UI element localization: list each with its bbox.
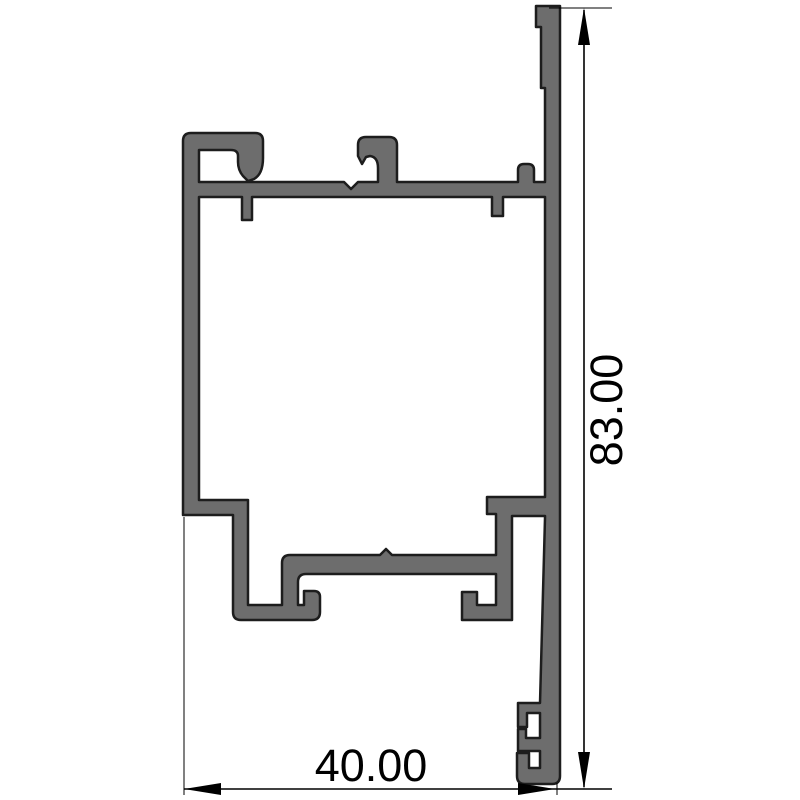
technical-drawing: 83.00 40.00	[0, 0, 800, 800]
width-dimension-label: 40.00	[315, 740, 428, 791]
drawing-canvas: 83.00 40.00	[0, 0, 800, 800]
arrow-up-icon	[578, 8, 590, 45]
vertical-dimension: 83.00	[549, 8, 632, 789]
profile-shape	[183, 6, 560, 784]
arrow-left-icon	[184, 783, 221, 795]
arrow-down-icon	[578, 752, 590, 789]
height-dimension-label: 83.00	[581, 354, 632, 467]
